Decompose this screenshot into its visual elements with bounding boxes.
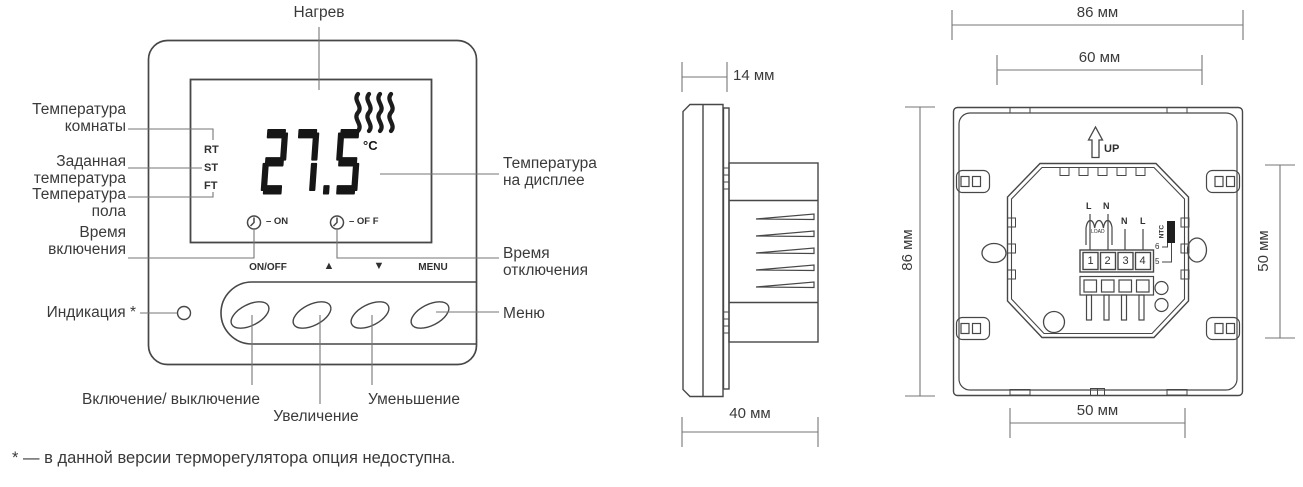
dim-label-40mm: 40 мм xyxy=(713,406,787,422)
down-triangle-icon: ▼ xyxy=(370,260,388,272)
label-indication: Индикация * xyxy=(8,304,136,321)
wire-load-n: N xyxy=(1103,202,1110,212)
side-mount-strip xyxy=(724,108,730,389)
callout-room-temp xyxy=(128,129,213,140)
label-power: Включение/ выключение xyxy=(26,391,260,408)
front-view xyxy=(149,41,477,365)
terminal-2: 2 xyxy=(1100,255,1115,267)
display-mode-st: ST xyxy=(204,162,218,174)
seven-segment-digits xyxy=(260,129,361,195)
callout-off-time xyxy=(337,230,499,258)
label-off-time: Время отключения xyxy=(503,245,615,279)
button-onoff xyxy=(227,296,273,333)
display-unit: °C xyxy=(363,139,378,153)
terminal-4: 4 xyxy=(1135,255,1150,267)
side-view xyxy=(683,105,818,397)
wire-comb xyxy=(1080,277,1154,321)
wire-load-l: L xyxy=(1086,202,1092,212)
label-heating: Нагрев xyxy=(283,4,355,21)
button-pill xyxy=(221,282,476,344)
button-label-onoff: ON/OFF xyxy=(243,262,293,273)
back-view xyxy=(954,108,1243,396)
display-outline xyxy=(191,80,432,243)
clock-icon-off xyxy=(331,216,344,229)
dim-14mm xyxy=(682,62,727,92)
terminal-1: 1 xyxy=(1083,255,1098,267)
terminal-5: 5 xyxy=(1155,258,1159,267)
clock-icon-on xyxy=(248,216,261,229)
front-callout-lines xyxy=(128,27,499,404)
back-screw-hole-2 xyxy=(1155,299,1168,312)
dim-label-60mm: 60 мм xyxy=(1062,50,1137,66)
back-hole xyxy=(1044,312,1065,333)
dim-label-50mm-bottom: 50 мм xyxy=(1060,403,1135,419)
button-label-menu: MENU xyxy=(410,262,456,273)
button-down xyxy=(347,296,393,333)
dim-label-86mm-top: 86 мм xyxy=(1060,5,1135,21)
wire-sense-n: N xyxy=(1121,217,1128,227)
wire-sense-l: L xyxy=(1140,217,1146,227)
front-panel-outline xyxy=(149,41,477,365)
label-decrease: Уменьшение xyxy=(368,391,482,408)
back-slot-left xyxy=(982,244,1006,263)
ntc-bracket xyxy=(1162,243,1172,262)
display-on-label: – ON xyxy=(266,217,288,227)
callout-floor-temp xyxy=(128,192,213,197)
ntc-label: NTC xyxy=(1158,221,1165,243)
label-on-time: Время включения xyxy=(8,224,126,258)
side-heatsink-fins xyxy=(756,214,814,288)
display-off-label: – OF F xyxy=(349,217,379,227)
load-label: LOAD xyxy=(1091,230,1105,236)
footnote: * — в данной версии терморегулятора опци… xyxy=(12,449,552,468)
button-menu xyxy=(407,296,453,333)
dim-label-50mm-right: 50 мм xyxy=(1256,227,1272,275)
display-mode-rt: RT xyxy=(204,144,219,156)
label-menu: Меню xyxy=(503,305,583,322)
back-slot-right xyxy=(1188,238,1207,262)
up-triangle-icon: ▲ xyxy=(320,260,338,272)
ntc-block xyxy=(1167,221,1175,243)
dim-label-86mm-left: 86 мм xyxy=(900,226,916,274)
thermostat-diagram: Нагрев Температура комнаты Заданная темп… xyxy=(0,0,1303,487)
terminal-6: 6 xyxy=(1155,243,1159,252)
button-up xyxy=(289,296,335,333)
terminal-3: 3 xyxy=(1118,255,1133,267)
side-strip-ticks xyxy=(724,168,730,333)
dim-label-14mm: 14 мм xyxy=(733,68,774,84)
up-arrow-icon xyxy=(1089,127,1103,158)
label-set-temperature: Заданная температура xyxy=(4,153,126,187)
label-room-temperature: Температура комнаты xyxy=(8,101,126,135)
heat-icon xyxy=(356,94,392,131)
label-increase: Увеличение xyxy=(262,408,370,425)
back-screw-hole-1 xyxy=(1155,282,1168,295)
display-mode-ft: FT xyxy=(204,180,217,192)
label-floor-temperature: Температура пола xyxy=(8,186,126,220)
up-label: UP xyxy=(1104,143,1119,155)
label-display-temperature: Температура на дисплее xyxy=(503,155,615,189)
indicator-led xyxy=(178,307,191,320)
